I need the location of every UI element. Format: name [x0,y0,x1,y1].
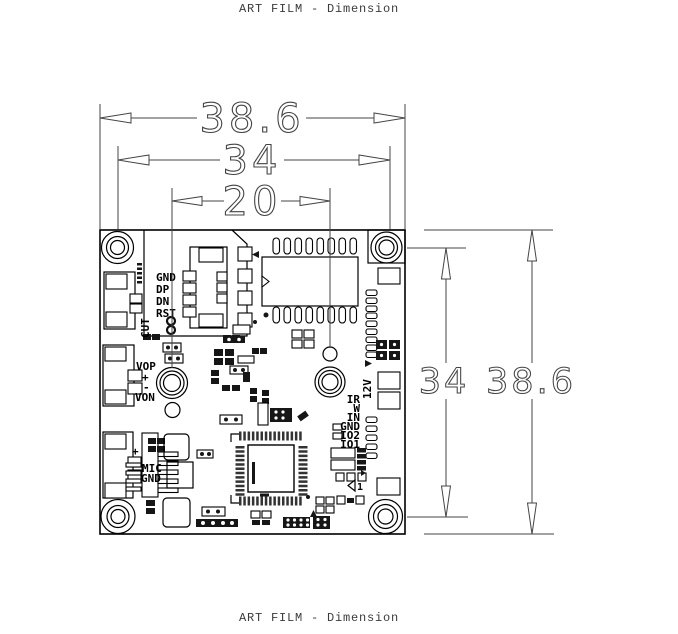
mounting-hole-top-left [102,232,134,264]
dimension-drawing-page: ART FILM - Dimension [0,0,678,634]
qfp-corner-mark-tl [231,434,239,442]
silk-rst-label: RST [156,307,176,320]
soic-body [262,257,358,306]
dim-hole-spacing-v: 34 [419,248,470,517]
silk-12v-label: 12V [361,379,374,399]
left-connector-top [104,272,142,329]
dim-hole-spacing-h: 34 [118,138,390,184]
qfp-corner-mark-bl [231,495,239,503]
drawing-title-bottom: ART FILM - Dimension [239,611,399,625]
lens-hole-right [315,367,345,397]
silk-io1-label: IO1 [340,438,360,451]
mounting-hole-bottom-right [369,500,403,534]
silk-pin1-label: 1 [357,482,363,493]
silk-arrow-12v-icon [365,360,372,367]
silk-cut-label: CUT [139,318,152,338]
dim-board-width: 38.6 [100,96,405,142]
dim-board-height-value: 38.6 [486,362,576,402]
qfp-pin1-dot [306,495,310,499]
silk-mic-gnd-label: GND [141,472,161,485]
soic-pin1-notch [262,276,269,287]
pcb-dimension-drawing: GND DP DN RST CUT VOP + - VON + MIC GND … [0,0,678,634]
lens-hole-left [157,368,188,399]
dim-lens-spacing: 20 [172,179,330,225]
qfp-main-ic [231,434,310,503]
silk-mic-plus-label: + [132,445,139,458]
pcb-board: GND DP DN RST CUT VOP + - VON + MIC GND … [100,230,405,534]
silk-von-label: VON [135,391,155,404]
via-hole-left [165,403,180,418]
mounting-hole-top-right [368,230,405,263]
mounting-hole-bottom-left [101,500,135,534]
usb-module [137,230,252,341]
dim-board-height: 38.6 [486,230,576,534]
dim-board-width-value: 38.6 [199,96,304,142]
soic-ic [252,238,358,324]
right-edge-square-pads [377,268,400,495]
soic-pin1-dot [264,313,269,318]
dim-lens-spacing-value: 20 [223,179,282,225]
pin1-triangle-icon [348,480,355,491]
silk-arrow-left-icon [252,251,259,258]
dim-hole-spacing-h-value: 34 [223,138,282,184]
via-hole-right [323,347,337,361]
dim-hole-spacing-v-value: 34 [419,362,470,402]
